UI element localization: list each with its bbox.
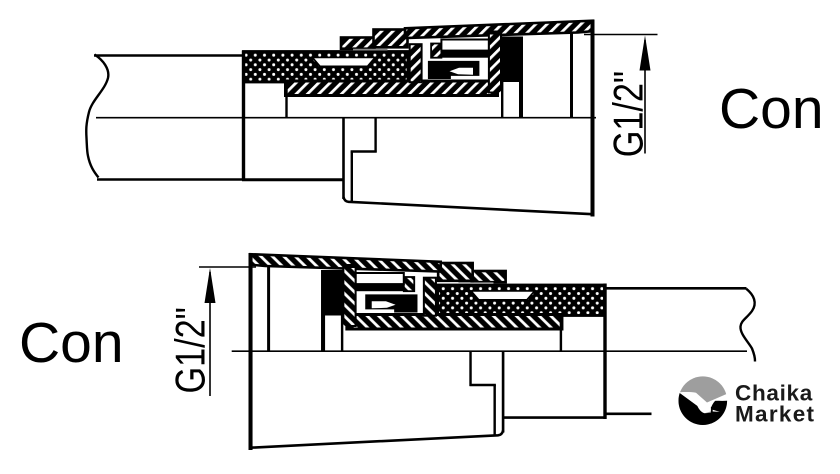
svg-text:G1/2": G1/2"	[605, 71, 652, 157]
svg-text:G1/2": G1/2"	[167, 307, 214, 393]
svg-text:Market: Market	[735, 402, 815, 427]
svg-text:Con: Con	[19, 311, 124, 375]
svg-text:Con: Con	[719, 77, 824, 141]
